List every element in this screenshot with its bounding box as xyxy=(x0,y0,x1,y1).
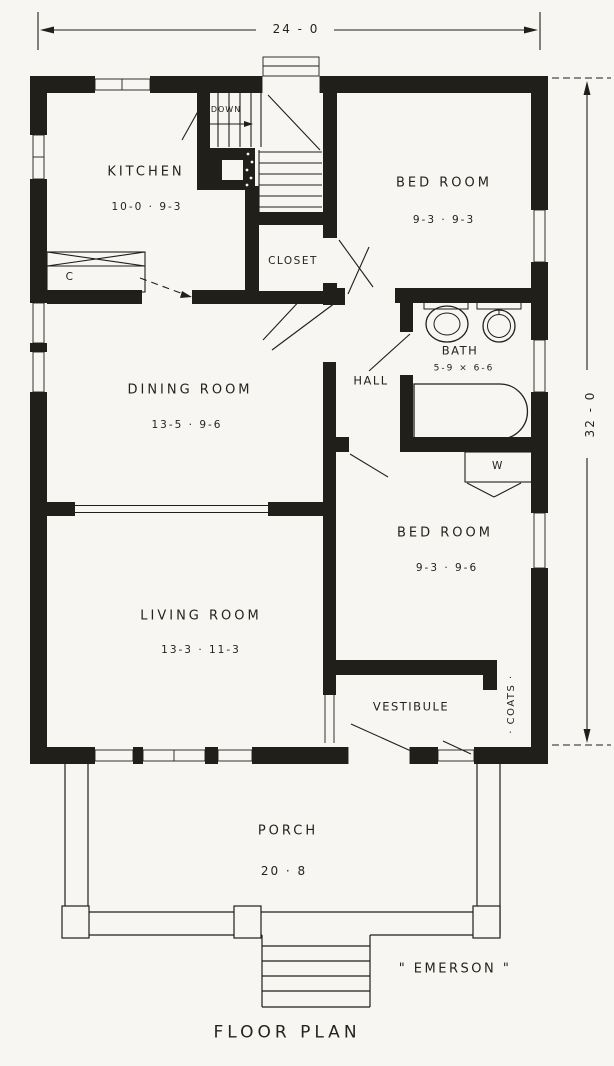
living-room-label: LIVING ROOM xyxy=(140,610,261,623)
hall-label: HALL xyxy=(353,375,388,387)
bedroom2-label: BED ROOM xyxy=(397,527,493,540)
bath-label: BATH xyxy=(442,345,479,357)
height-dimension-label: 32 - 0 xyxy=(584,391,596,438)
floor-plan-drawing xyxy=(0,0,614,1066)
bedroom1-size: 9-3 · 9-3 xyxy=(413,215,475,226)
bath-size: 5-9 × 6-6 xyxy=(434,365,495,374)
bedroom1-label: BED ROOM xyxy=(396,177,492,190)
porch-label: PORCH xyxy=(258,825,318,838)
coats-label: · COATS · xyxy=(507,674,517,733)
closet-label: CLOSET xyxy=(268,256,318,267)
counter-label: C xyxy=(66,272,75,283)
architect-signature: " EMERSON " xyxy=(399,963,512,976)
stairs-down-label: DOWN xyxy=(211,106,241,114)
width-dimension-label: 24 - 0 xyxy=(273,23,320,35)
dining-room-label: DINING ROOM xyxy=(127,384,252,397)
kitchen-counter xyxy=(47,252,145,292)
chimney xyxy=(197,148,255,190)
porch-size: 20 · 8 xyxy=(261,865,307,877)
dining-room-size: 13-5 · 9-6 xyxy=(152,420,223,431)
bedroom2-size: 9-3 · 9-6 xyxy=(416,563,478,574)
living-room-size: 13-3 · 11-3 xyxy=(161,645,241,656)
floor-plan: 24 - 0 32 - 0 DOWN KITCHEN 10-0 · 9-3 BE… xyxy=(0,0,614,1066)
wardrobe-closet xyxy=(465,452,533,497)
kitchen-label: KITCHEN xyxy=(107,166,184,179)
wardrobe-label: W xyxy=(492,461,504,472)
kitchen-size: 10-0 · 9-3 xyxy=(112,202,183,213)
vestibule-label: VESTIBULE xyxy=(373,701,449,713)
plan-title: FLOOR PLAN xyxy=(213,1025,360,1042)
